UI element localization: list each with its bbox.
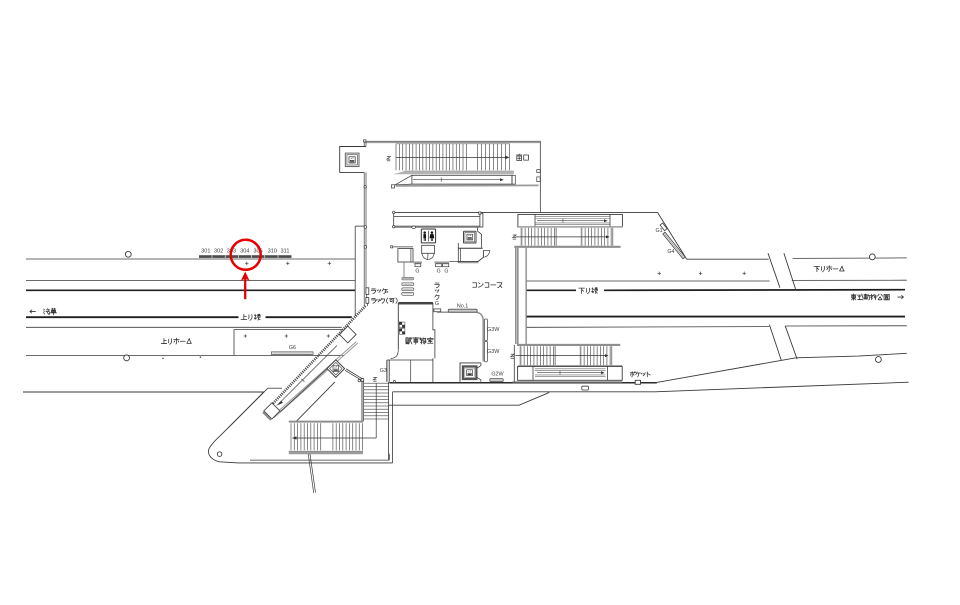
svg-text:302: 302 bbox=[214, 248, 223, 254]
svg-text:G3: G3 bbox=[380, 368, 387, 374]
svg-text:311: 311 bbox=[281, 248, 290, 254]
svg-text:G: G bbox=[437, 269, 441, 275]
svg-text:304: 304 bbox=[240, 248, 249, 254]
svg-text:G4: G4 bbox=[667, 249, 674, 255]
svg-text:310: 310 bbox=[268, 248, 277, 254]
svg-text:G: G bbox=[415, 269, 419, 275]
svg-text:G3W: G3W bbox=[487, 327, 500, 333]
svg-text:G1: G1 bbox=[655, 228, 662, 234]
svg-text:G: G bbox=[444, 269, 448, 275]
svg-text:G2W: G2W bbox=[491, 372, 504, 378]
svg-text:No.1: No.1 bbox=[457, 304, 468, 310]
svg-text:G: G bbox=[385, 289, 389, 295]
svg-text:G6: G6 bbox=[289, 345, 296, 351]
svg-text:G3W: G3W bbox=[487, 349, 500, 355]
svg-text:301: 301 bbox=[201, 248, 210, 254]
svg-text:G: G bbox=[435, 301, 439, 307]
